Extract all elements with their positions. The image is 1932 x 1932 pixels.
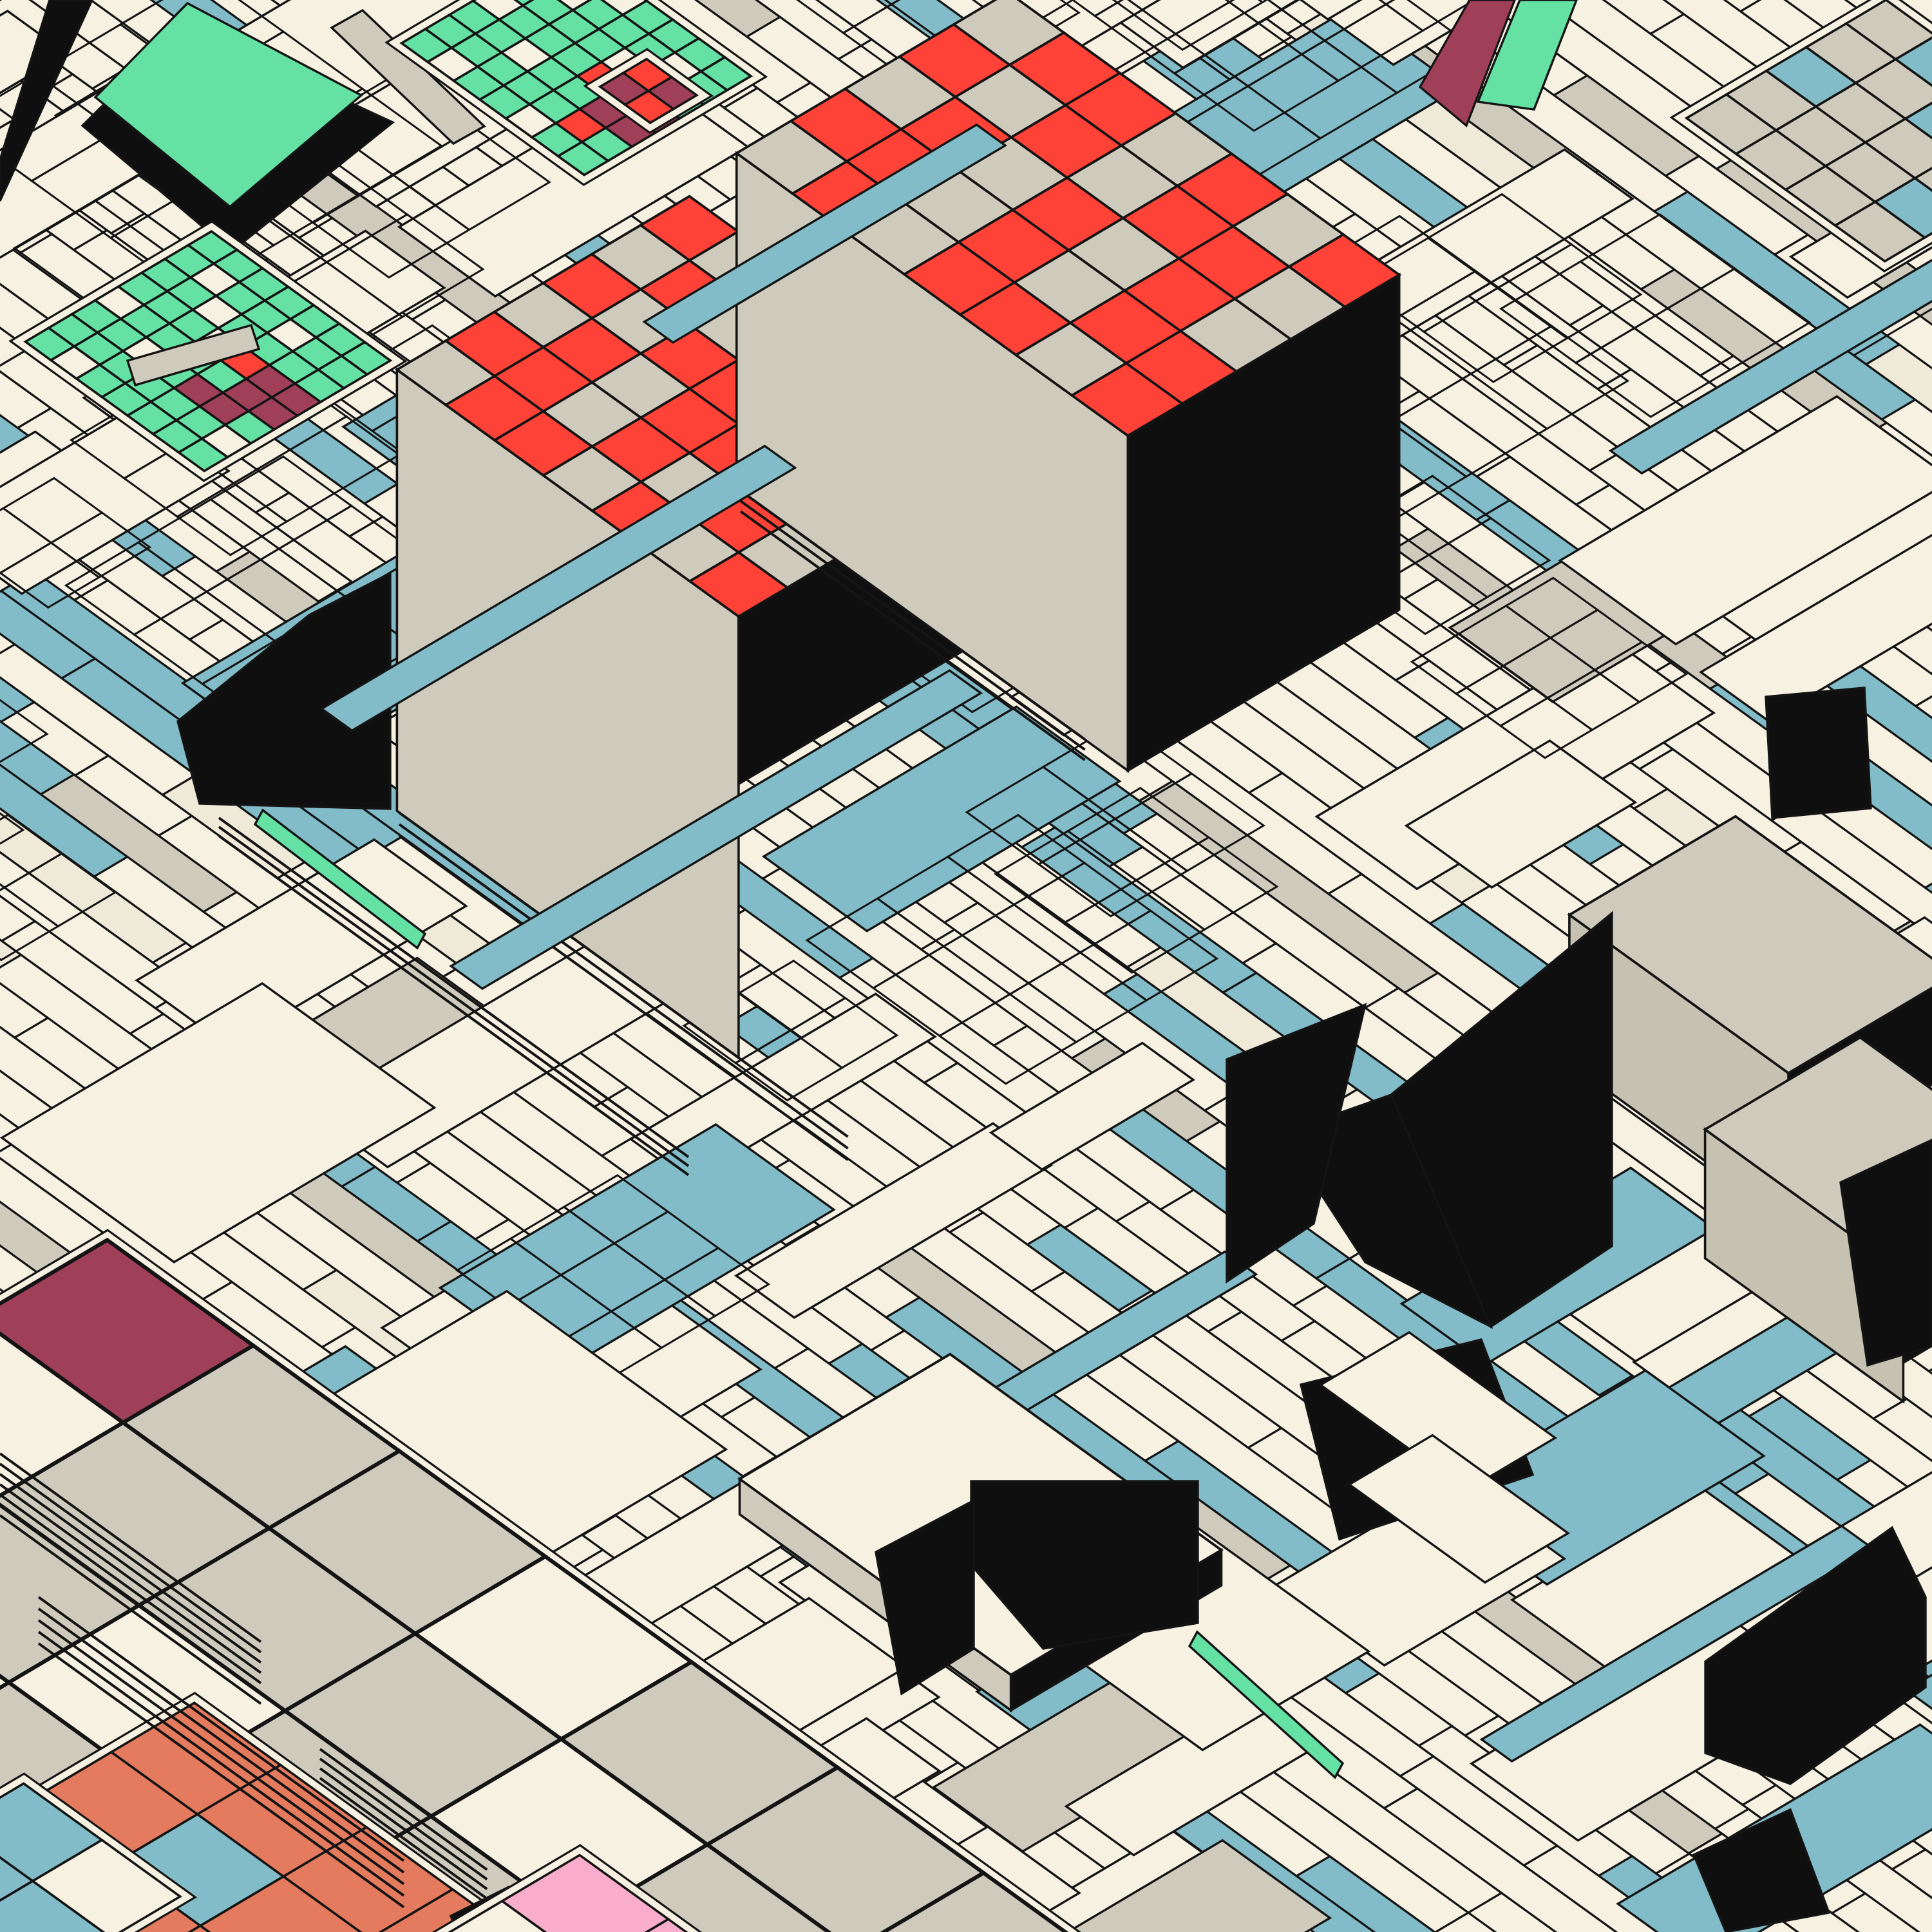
artwork-canvas	[0, 0, 1932, 1932]
generative-artwork	[0, 0, 1932, 1932]
